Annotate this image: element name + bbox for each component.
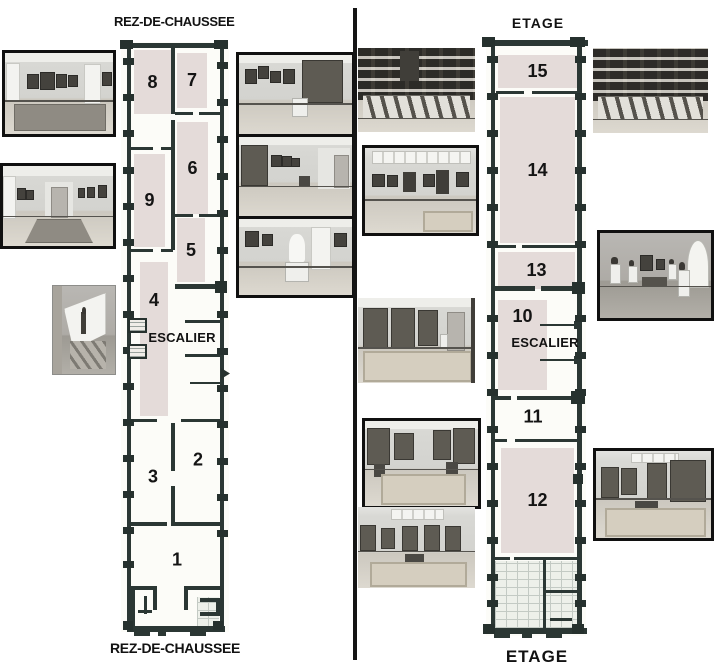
room-4-number: 4: [149, 290, 159, 311]
room-7: 7: [177, 53, 207, 108]
bright-shape: [6, 63, 20, 102]
museum-floorplans-page: REZ-DE-CHAUSSEE REZ-DE-CHAUSSEE ETAGE ET…: [0, 0, 718, 668]
frame-shape: [68, 75, 79, 88]
room-13-number: 13: [526, 260, 546, 281]
baseline-shape: [358, 118, 475, 120]
tap-shape: [670, 460, 707, 502]
ground-floor-title-bottom: REZ-DE-CHAUSSEE: [110, 640, 234, 656]
frame-shape: [262, 234, 273, 246]
room-9-number: 9: [144, 190, 154, 211]
ceil-shape: [3, 166, 113, 176]
bust-shape: [679, 262, 686, 270]
carpet-l-shape: [363, 351, 472, 382]
tap-shape: [402, 526, 418, 551]
room-5: 5: [177, 218, 205, 282]
frame-shape: [78, 188, 86, 198]
tap-shape: [363, 308, 388, 347]
pedestal-shape: [668, 264, 678, 280]
tap-shape: [424, 525, 440, 551]
dark-shape: [471, 298, 475, 383]
tap-shape: [433, 430, 451, 461]
bright-shape: [311, 227, 331, 270]
stair-glyph: [128, 344, 147, 359]
room-12-number: 12: [527, 490, 547, 511]
pedestal-shape: [678, 270, 690, 298]
room-2-number: 2: [193, 450, 203, 471]
dark-shape: [81, 312, 87, 333]
room-8-number: 8: [147, 72, 157, 93]
door-shape: [334, 155, 350, 188]
baseline-shape: [365, 469, 478, 471]
frame-shape: [270, 71, 281, 83]
carpet-l-shape: [605, 508, 706, 536]
frame-shape: [372, 174, 385, 188]
ceil-shape: [239, 137, 352, 145]
photo-etage-sculpture-room: [597, 230, 714, 321]
room-14: 14: [500, 97, 575, 243]
photo-ground-room-paintings-carpet: [2, 50, 116, 137]
tap-shape: [394, 433, 414, 461]
tap-shape: [367, 428, 389, 466]
room-13: 13: [498, 252, 575, 289]
dark-shape: [436, 170, 449, 194]
photo-etage-tapestry-table-room: [593, 448, 714, 541]
ground-floor-title-top: REZ-DE-CHAUSSEE: [114, 14, 226, 29]
bench-shape: [642, 277, 666, 286]
room-15-number: 15: [527, 61, 547, 82]
ceil-shape: [358, 298, 475, 307]
frame-shape: [245, 69, 257, 84]
door-shape: [51, 187, 67, 218]
frame-shape: [26, 190, 34, 200]
upper-floor-title-bottom: ETAGE: [484, 647, 590, 667]
frame-shape: [291, 158, 300, 167]
room-14-number: 14: [527, 160, 547, 181]
frame-shape: [56, 74, 68, 88]
baseline-shape: [239, 103, 352, 105]
room-8: 8: [134, 50, 171, 114]
door-shape: [447, 312, 465, 351]
photo-etage-three-tapestries: [358, 298, 475, 383]
room-9: 9: [134, 154, 165, 247]
room-6-number: 6: [187, 158, 197, 179]
frame-shape: [258, 66, 269, 79]
skylight-shape: [391, 509, 444, 521]
photo-etage-salon-frames-left: [358, 48, 475, 132]
carpet-l-shape: [370, 562, 468, 587]
dark-shape: [403, 172, 416, 192]
baseline-shape: [358, 551, 475, 553]
statue-shape: [289, 234, 305, 261]
baseline-shape: [593, 119, 708, 121]
tap-shape: [601, 467, 619, 499]
baseline-shape: [358, 347, 475, 349]
steps-shape: [70, 341, 106, 369]
frame-shape: [283, 69, 295, 84]
frame-shape: [98, 185, 108, 198]
baseline-shape: [239, 186, 352, 188]
tap-shape: [302, 60, 342, 104]
room-15: 15: [498, 55, 577, 88]
photo-etage-salon-frames-right: [593, 48, 708, 133]
pedestal-shape: [628, 266, 638, 283]
bust-shape: [82, 307, 86, 314]
ceil-shape: [239, 219, 352, 227]
shadow-shape: [53, 286, 62, 374]
pedestal-shape: [292, 98, 308, 117]
ground-floor-escalier-label: ESCALIER: [145, 330, 219, 345]
baseline-shape: [596, 498, 711, 500]
photo-ground-long-corridor: [0, 163, 116, 249]
pedestal-shape: [610, 264, 621, 285]
room-11-number: 11: [523, 407, 542, 428]
baseline-shape: [3, 216, 113, 218]
archwin-shape: [687, 240, 709, 288]
baseline-shape: [600, 286, 711, 288]
carpet-shape: [25, 219, 93, 243]
photo-etage-tapestry-skylight: [358, 507, 475, 588]
tap-shape: [647, 463, 667, 500]
easelrow-shape: [363, 95, 471, 119]
frame-shape: [640, 255, 653, 271]
room-5-number: 5: [186, 240, 196, 261]
room-3-number: 3: [148, 467, 158, 488]
frame-shape: [102, 72, 112, 85]
frame-shape: [27, 74, 40, 89]
easelrow-shape: [598, 96, 704, 120]
photo-etage-tapestry-table-lamp: [362, 418, 481, 509]
frame-shape: [423, 174, 435, 187]
bust-shape: [611, 257, 618, 264]
frame-shape: [334, 233, 347, 247]
tap-shape: [621, 468, 637, 494]
tap-shape: [241, 145, 268, 186]
bright-shape: [84, 64, 101, 104]
room-10-number: 10: [512, 306, 532, 327]
center-divider-line: [353, 8, 357, 660]
bright-shape: [3, 176, 16, 220]
upper-floor-escalier-label: ESCALIER: [506, 335, 584, 350]
room-1-number: 1: [172, 550, 182, 571]
photo-etage-skylit-gallery: [362, 145, 479, 236]
tap-shape: [445, 526, 461, 551]
tap-shape: [453, 428, 475, 464]
photo-ground-tapestry-gallery: [236, 134, 355, 221]
photo-ground-staircase-statue: [52, 285, 116, 375]
skylight-shape: [372, 151, 472, 163]
baseline-shape: [365, 199, 476, 201]
room-12: 12: [501, 448, 574, 553]
frame-shape: [17, 188, 26, 200]
dark-shape: [400, 51, 419, 81]
tap-shape: [381, 528, 395, 549]
frame-shape: [245, 231, 259, 247]
frame-shape: [40, 72, 55, 89]
carpet-l-shape: [381, 474, 466, 505]
frame-shape: [271, 155, 282, 168]
baseline-shape: [239, 266, 352, 268]
room-6: 6: [177, 122, 208, 214]
upper-floor-title-top: ETAGE: [488, 15, 588, 31]
frame-shape: [656, 259, 666, 270]
baseline-shape: [5, 100, 113, 102]
framewall-shape: [593, 48, 708, 101]
tap-shape: [391, 308, 415, 347]
ceil-shape: [5, 53, 113, 62]
tap-shape: [418, 310, 439, 346]
carpet-l-shape: [423, 211, 474, 232]
room-7-number: 7: [187, 70, 197, 91]
pedestal-shape: [285, 262, 308, 282]
tap-shape: [360, 525, 376, 551]
photo-ground-tapestry-pedestal-room: [236, 52, 355, 138]
photo-ground-white-statue-room: [236, 216, 355, 298]
frame-shape: [387, 175, 398, 187]
carpet-shape: [14, 104, 107, 131]
frame-shape: [456, 172, 469, 187]
frame-shape: [87, 187, 96, 199]
